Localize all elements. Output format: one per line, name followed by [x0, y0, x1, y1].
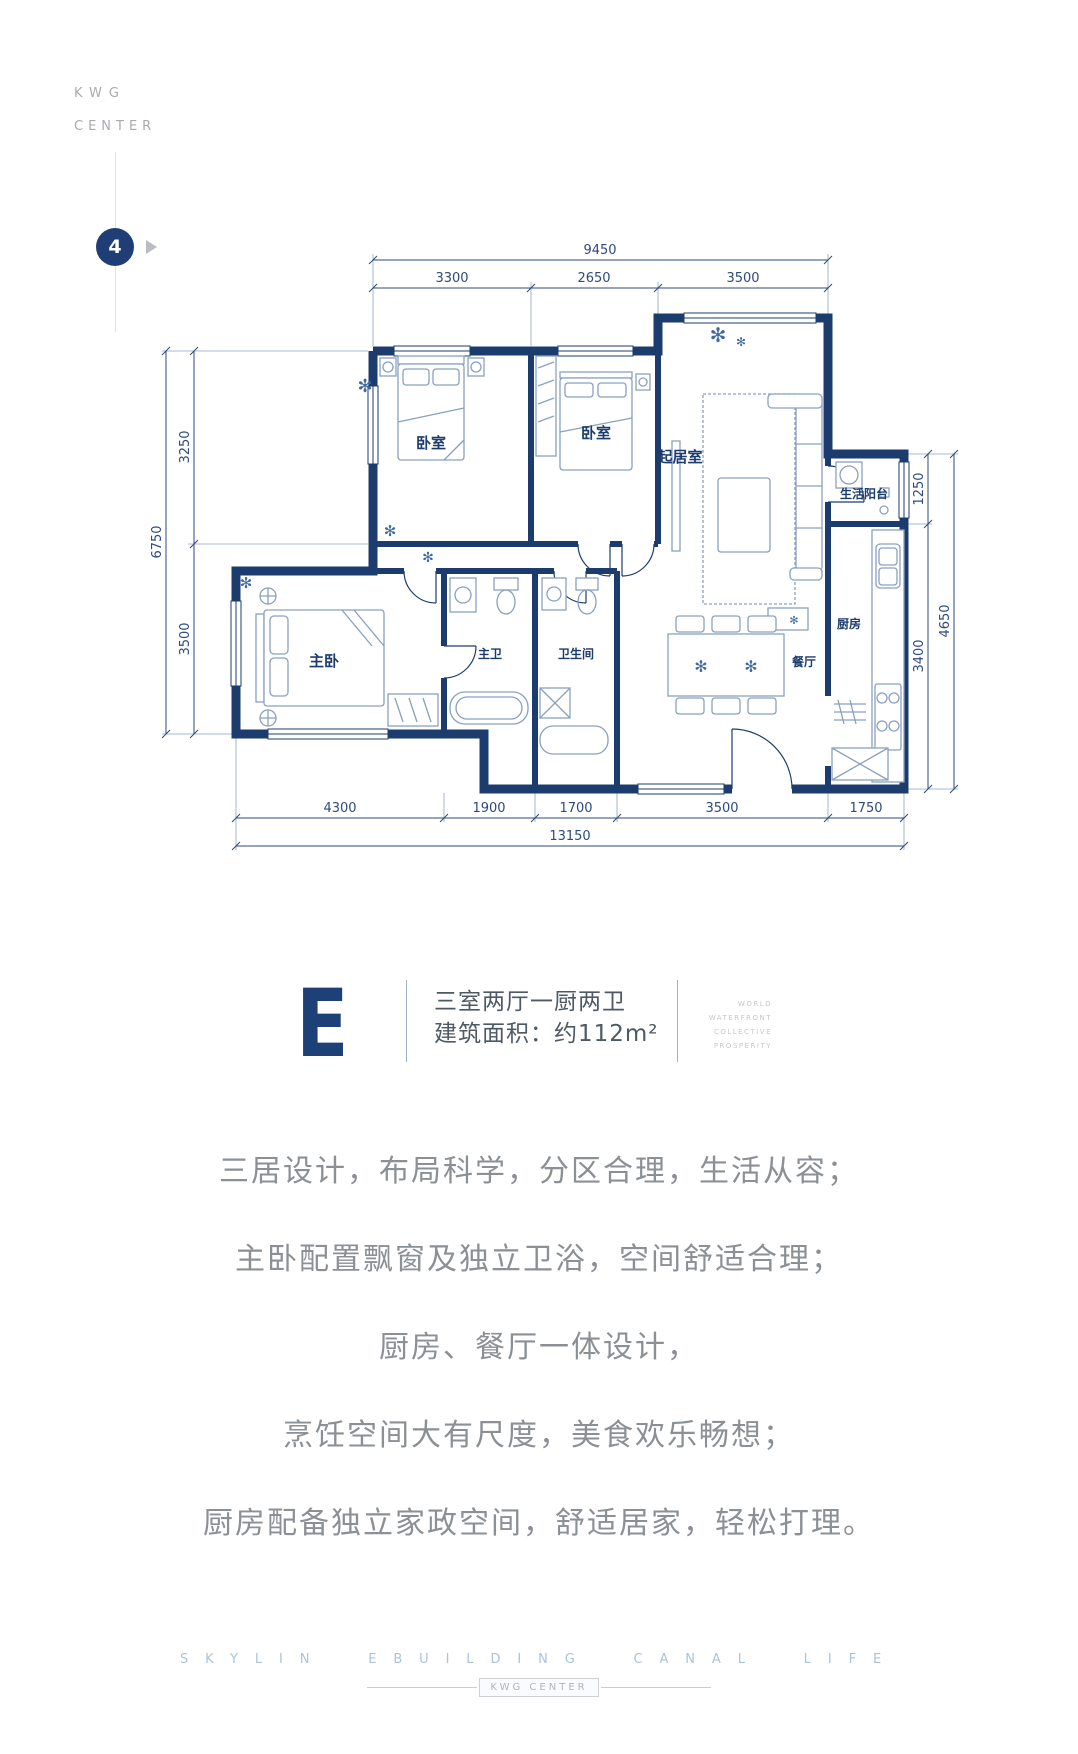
description-line-1: 三居设计，布局科学，分区合理，生活从容； [0, 1146, 1078, 1190]
floorplan-poster-page: KWG CENTER 4 945 [0, 0, 1078, 1754]
footer-badge: KWG CENTER [479, 1678, 598, 1697]
dim-bottom-4: 3500 [705, 801, 738, 816]
dim-bottom-3: 1700 [559, 801, 592, 816]
dim-left-2: 3500 [178, 622, 193, 655]
brand-logo-line2: CENTER [74, 119, 156, 134]
dining-table-icon [668, 616, 784, 714]
window-icon [684, 313, 816, 323]
footer-badge-row: KWG CENTER [0, 1678, 1078, 1697]
dim-left-total: 6750 [150, 525, 165, 558]
unit-tagline-word3: COLLECTIVE [702, 1025, 772, 1039]
unit-divider-right [677, 980, 678, 1062]
dim-bottom-2: 1900 [472, 801, 505, 816]
window-icon [394, 346, 470, 356]
room-label-kitchen: 厨房 [837, 616, 861, 631]
room-label-bedroom2: 卧室 [581, 424, 611, 442]
unit-area-text: 建筑面积：约112m² [434, 1018, 659, 1050]
dim-top-3: 3500 [726, 271, 759, 286]
dim-right-2: 3400 [912, 639, 927, 672]
bay-window-icon [231, 601, 241, 686]
unit-marker-number: 4 [108, 236, 121, 258]
window-icon [558, 346, 633, 356]
description-line-5: 厨房配备独立家政空间，舒适居家，轻松打理。 [0, 1498, 1078, 1542]
sink-icon [450, 578, 476, 612]
dim-top-1: 3300 [435, 271, 468, 286]
dim-right-total: 4650 [938, 604, 953, 637]
dim-top-total: 9450 [583, 243, 616, 258]
unit-divider-left [406, 980, 407, 1062]
unit-tagline-word2: WATERFRONT [702, 1011, 772, 1025]
laundry-box-icon [540, 688, 570, 718]
sink-icon [542, 578, 566, 610]
window-icon [638, 784, 724, 794]
stove-icon [875, 684, 901, 750]
brand-logo-line1: KWG [74, 86, 156, 101]
description-paragraph: 三居设计，布局科学，分区合理，生活从容； 主卧配置飘窗及独立卫浴，空间舒适合理；… [0, 1146, 1078, 1586]
room-label-dining: 餐厅 [792, 654, 816, 669]
window-icon [268, 729, 388, 739]
plant-icon: ✻ [744, 657, 757, 676]
unit-letter: E [296, 978, 349, 1072]
plant-icon: ✻ [694, 657, 707, 676]
nightstand-icon [260, 588, 276, 604]
dim-left-1: 3250 [178, 430, 193, 463]
entry-door-icon [732, 729, 792, 789]
floorplan-drawing: 9450 3300 2650 3500 6750 3250 3500 1250 … [128, 226, 973, 886]
footer-tagline: SKYLIN EBUILDING CANAL LIFE [0, 1652, 1078, 1667]
badge-line-left [367, 1687, 477, 1688]
wardrobe-icon [536, 356, 556, 456]
unit-tagline-word4: PROSPERITY [702, 1039, 772, 1053]
plant-icon: ✻ [789, 614, 798, 627]
toilet-icon [494, 578, 518, 614]
unit-info: 三室两厅一厨两卫 建筑面积：约112m² [434, 986, 659, 1050]
description-line-3: 厨房、餐厅一体设计， [0, 1322, 1078, 1366]
description-line-4: 烹饪空间大有尺度，美食欢乐畅想； [0, 1410, 1078, 1454]
room-label-master: 主卧 [309, 652, 339, 670]
dim-bottom-total: 13150 [549, 829, 590, 844]
brand-logo: KWG CENTER [74, 86, 156, 134]
toilet-icon [576, 578, 598, 614]
plant-icon: ✻ [710, 323, 727, 347]
coffee-table-icon [718, 478, 770, 552]
unit-tagline-word1: WORLD [702, 997, 772, 1011]
bed-icon [560, 372, 650, 470]
window-icon [899, 462, 909, 518]
bathtub-icon [540, 726, 608, 754]
washer-icon [836, 462, 862, 488]
room-label-living: 起居室 [656, 448, 702, 466]
room-label-bath: 卫生间 [558, 646, 594, 661]
dim-top-2: 2650 [577, 271, 610, 286]
dim-bottom-5: 1750 [849, 801, 882, 816]
description-line-2: 主卧配置飘窗及独立卫浴，空间舒适合理； [0, 1234, 1078, 1278]
plant-icon: ✻ [384, 522, 397, 540]
nightstand-icon [260, 710, 276, 726]
bay-window-icon [368, 386, 378, 464]
dim-bottom-1: 4300 [323, 801, 356, 816]
wardrobe-icon [388, 694, 438, 726]
sink-icon [876, 544, 900, 588]
room-label-balcony: 生活阳台 [840, 486, 888, 501]
badge-line-right [601, 1687, 711, 1688]
unit-layout-text: 三室两厅一厨两卫 [434, 986, 659, 1018]
plant-icon: ✻ [240, 574, 253, 592]
plant-icon: ✻ [422, 550, 434, 566]
room-label-master-bath: 主卫 [478, 646, 502, 661]
plant-icon: ✻ [357, 376, 372, 397]
bathtub-icon [450, 692, 528, 724]
room-label-bedroom1: 卧室 [416, 434, 446, 452]
unit-tagline: WORLD WATERFRONT COLLECTIVE PROSPERITY [702, 997, 772, 1053]
dim-right-1: 1250 [912, 472, 927, 505]
plant-icon: ✻ [736, 335, 746, 349]
